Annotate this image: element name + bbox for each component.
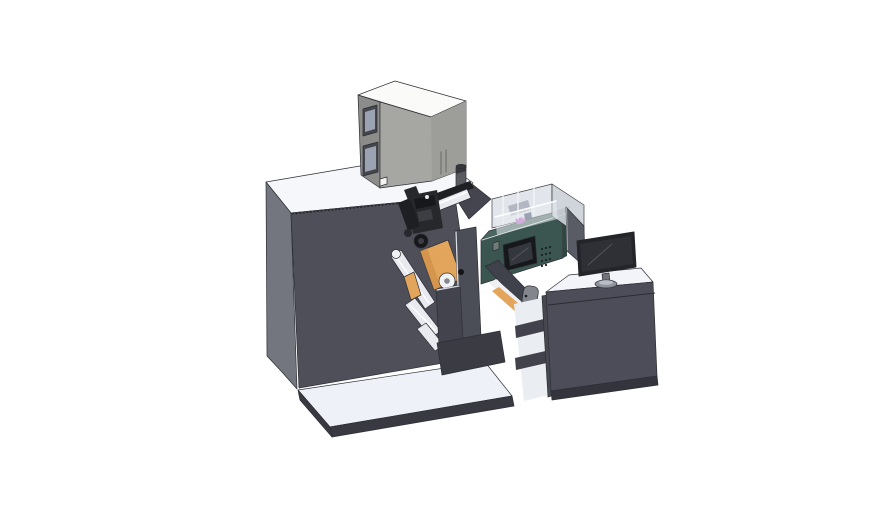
- keypad-dot: [541, 260, 543, 262]
- machine-3d-render: [0, 0, 888, 522]
- electronics-enclosure: [358, 81, 466, 188]
- keypad-dot: [549, 252, 551, 254]
- hmi-hinge: [493, 241, 499, 251]
- mech-knob-center: [418, 238, 424, 244]
- mech-knob-small: [404, 229, 412, 237]
- beacon-cap: [456, 164, 466, 168]
- keypad-dot: [549, 258, 551, 260]
- window-glass: [365, 109, 375, 132]
- cad-render-stage: [0, 0, 888, 522]
- monitor-base-top: [599, 280, 613, 285]
- keypad-dot: [545, 264, 547, 266]
- mech-glint: [425, 195, 429, 199]
- keypad-dot: [541, 248, 543, 250]
- keypad-dot: [545, 259, 547, 261]
- roll-core-hole: [444, 278, 450, 284]
- handle-hole: [525, 295, 528, 298]
- front-plate: [436, 285, 463, 345]
- keypad-dot: [545, 247, 547, 249]
- plate-hole: [458, 269, 464, 275]
- keypad-dot: [545, 253, 547, 255]
- roller-cap: [392, 250, 401, 259]
- keypad-dot: [549, 246, 551, 248]
- window-glass: [365, 146, 376, 172]
- label-square: [380, 177, 387, 186]
- desk-front: [546, 282, 657, 391]
- keypad-dot: [541, 254, 543, 256]
- keypad-dot: [541, 265, 543, 267]
